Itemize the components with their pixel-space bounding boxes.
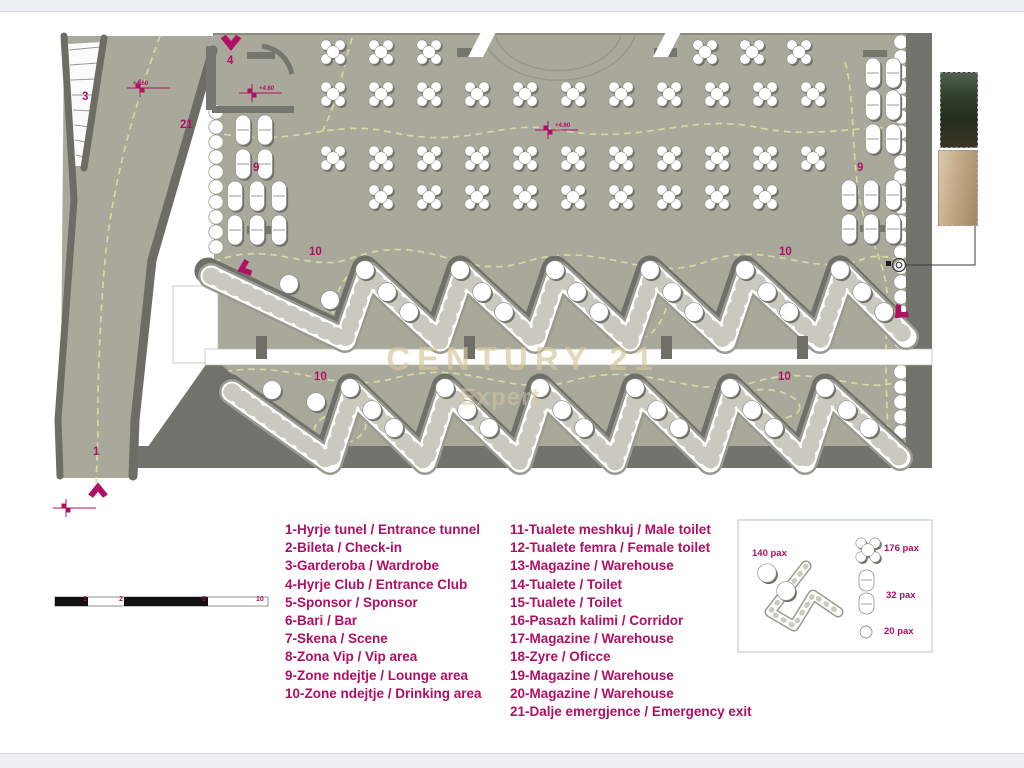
legend-item: 10-Zone ndejtje / Drinking area bbox=[285, 685, 482, 703]
elevation-text-1: +4.60 bbox=[133, 81, 148, 87]
watermark-brand: CENTURY 21 bbox=[378, 340, 668, 378]
right-wall bbox=[906, 33, 932, 468]
scale-tick-1: 1 bbox=[83, 596, 87, 603]
legend-item: 11-Tualete meshkuj / Male toilet bbox=[510, 521, 752, 539]
legend-item: 19-Magazine / Warehouse bbox=[510, 667, 752, 685]
legend-item: 21-Dalje emergjence / Emergency exit bbox=[510, 703, 752, 721]
mini-circle-table bbox=[860, 626, 872, 638]
legend-item: 5-Sponsor / Sponsor bbox=[285, 594, 482, 612]
pax-label-140: 140 pax bbox=[752, 549, 787, 559]
legend-item: 9-Zone ndejtje / Lounge area bbox=[285, 667, 482, 685]
legend-item: 15-Tualete / Toilet bbox=[510, 594, 752, 612]
zone-label-10-d: 10 bbox=[778, 372, 791, 384]
zone-label-10-a: 10 bbox=[309, 247, 322, 259]
scale-tick-10: 10 bbox=[256, 596, 264, 603]
legend-item: 7-Skena / Scene bbox=[285, 630, 482, 648]
zone-label-3: 3 bbox=[82, 92, 88, 104]
legend-item: 13-Magazine / Warehouse bbox=[510, 557, 752, 575]
legend-item: 17-Magazine / Warehouse bbox=[510, 630, 752, 648]
elevation-text-3: +4.60 bbox=[555, 123, 570, 129]
zone-label-21: 21 bbox=[180, 120, 193, 132]
scale-tick-5: 5 bbox=[202, 596, 206, 603]
legend-item: 16-Pasazh kalimi / Corridor bbox=[510, 612, 752, 630]
watermark-sub: Expert bbox=[420, 384, 580, 412]
zone-label-9-right: 9 bbox=[857, 163, 863, 175]
legend-column-left: 1-Hyrje tunel / Entrance tunnel 2-Bileta… bbox=[285, 521, 482, 703]
legend-column-right: 11-Tualete meshkuj / Male toilet 12-Tual… bbox=[510, 521, 752, 721]
elevation-text-2: +4.60 bbox=[259, 86, 274, 92]
legend-item: 3-Garderoba / Wardrobe bbox=[285, 557, 482, 575]
legend-item: 6-Bari / Bar bbox=[285, 612, 482, 630]
pax-label-176: 176 pax bbox=[884, 544, 919, 554]
legend-item: 14-Tualete / Toilet bbox=[510, 576, 752, 594]
pax-label-32: 32 pax bbox=[886, 591, 916, 601]
legend-item: 8-Zona Vip / Vip area bbox=[285, 648, 482, 666]
legend-item: 1-Hyrje tunel / Entrance tunnel bbox=[285, 521, 482, 539]
scale-tick-2: 2 bbox=[119, 596, 123, 603]
legend-item: 4-Hyrje Club / Entrance Club bbox=[285, 576, 482, 594]
zone-label-9-left: 9 bbox=[253, 163, 259, 175]
legend-item: 18-Zyre / Oficce bbox=[510, 648, 752, 666]
zone-label-1: 1 bbox=[93, 447, 99, 459]
zone-label-10-c: 10 bbox=[314, 372, 327, 384]
photo-thumbnail-interior-1 bbox=[940, 72, 978, 148]
legend-item: 20-Magazine / Warehouse bbox=[510, 685, 752, 703]
legend-item: 2-Bileta / Check-in bbox=[285, 539, 482, 557]
floorplan-page: CENTURY 21 Expert 3 21 4 9 9 10 10 10 10… bbox=[0, 0, 1024, 768]
pax-label-20: 20 pax bbox=[884, 627, 914, 637]
zone-label-10-b: 10 bbox=[779, 247, 792, 259]
legend-item: 12-Tualete femra / Female toilet bbox=[510, 539, 752, 557]
photo-thumbnail-interior-2 bbox=[938, 150, 978, 226]
zone-label-4: 4 bbox=[227, 56, 233, 68]
